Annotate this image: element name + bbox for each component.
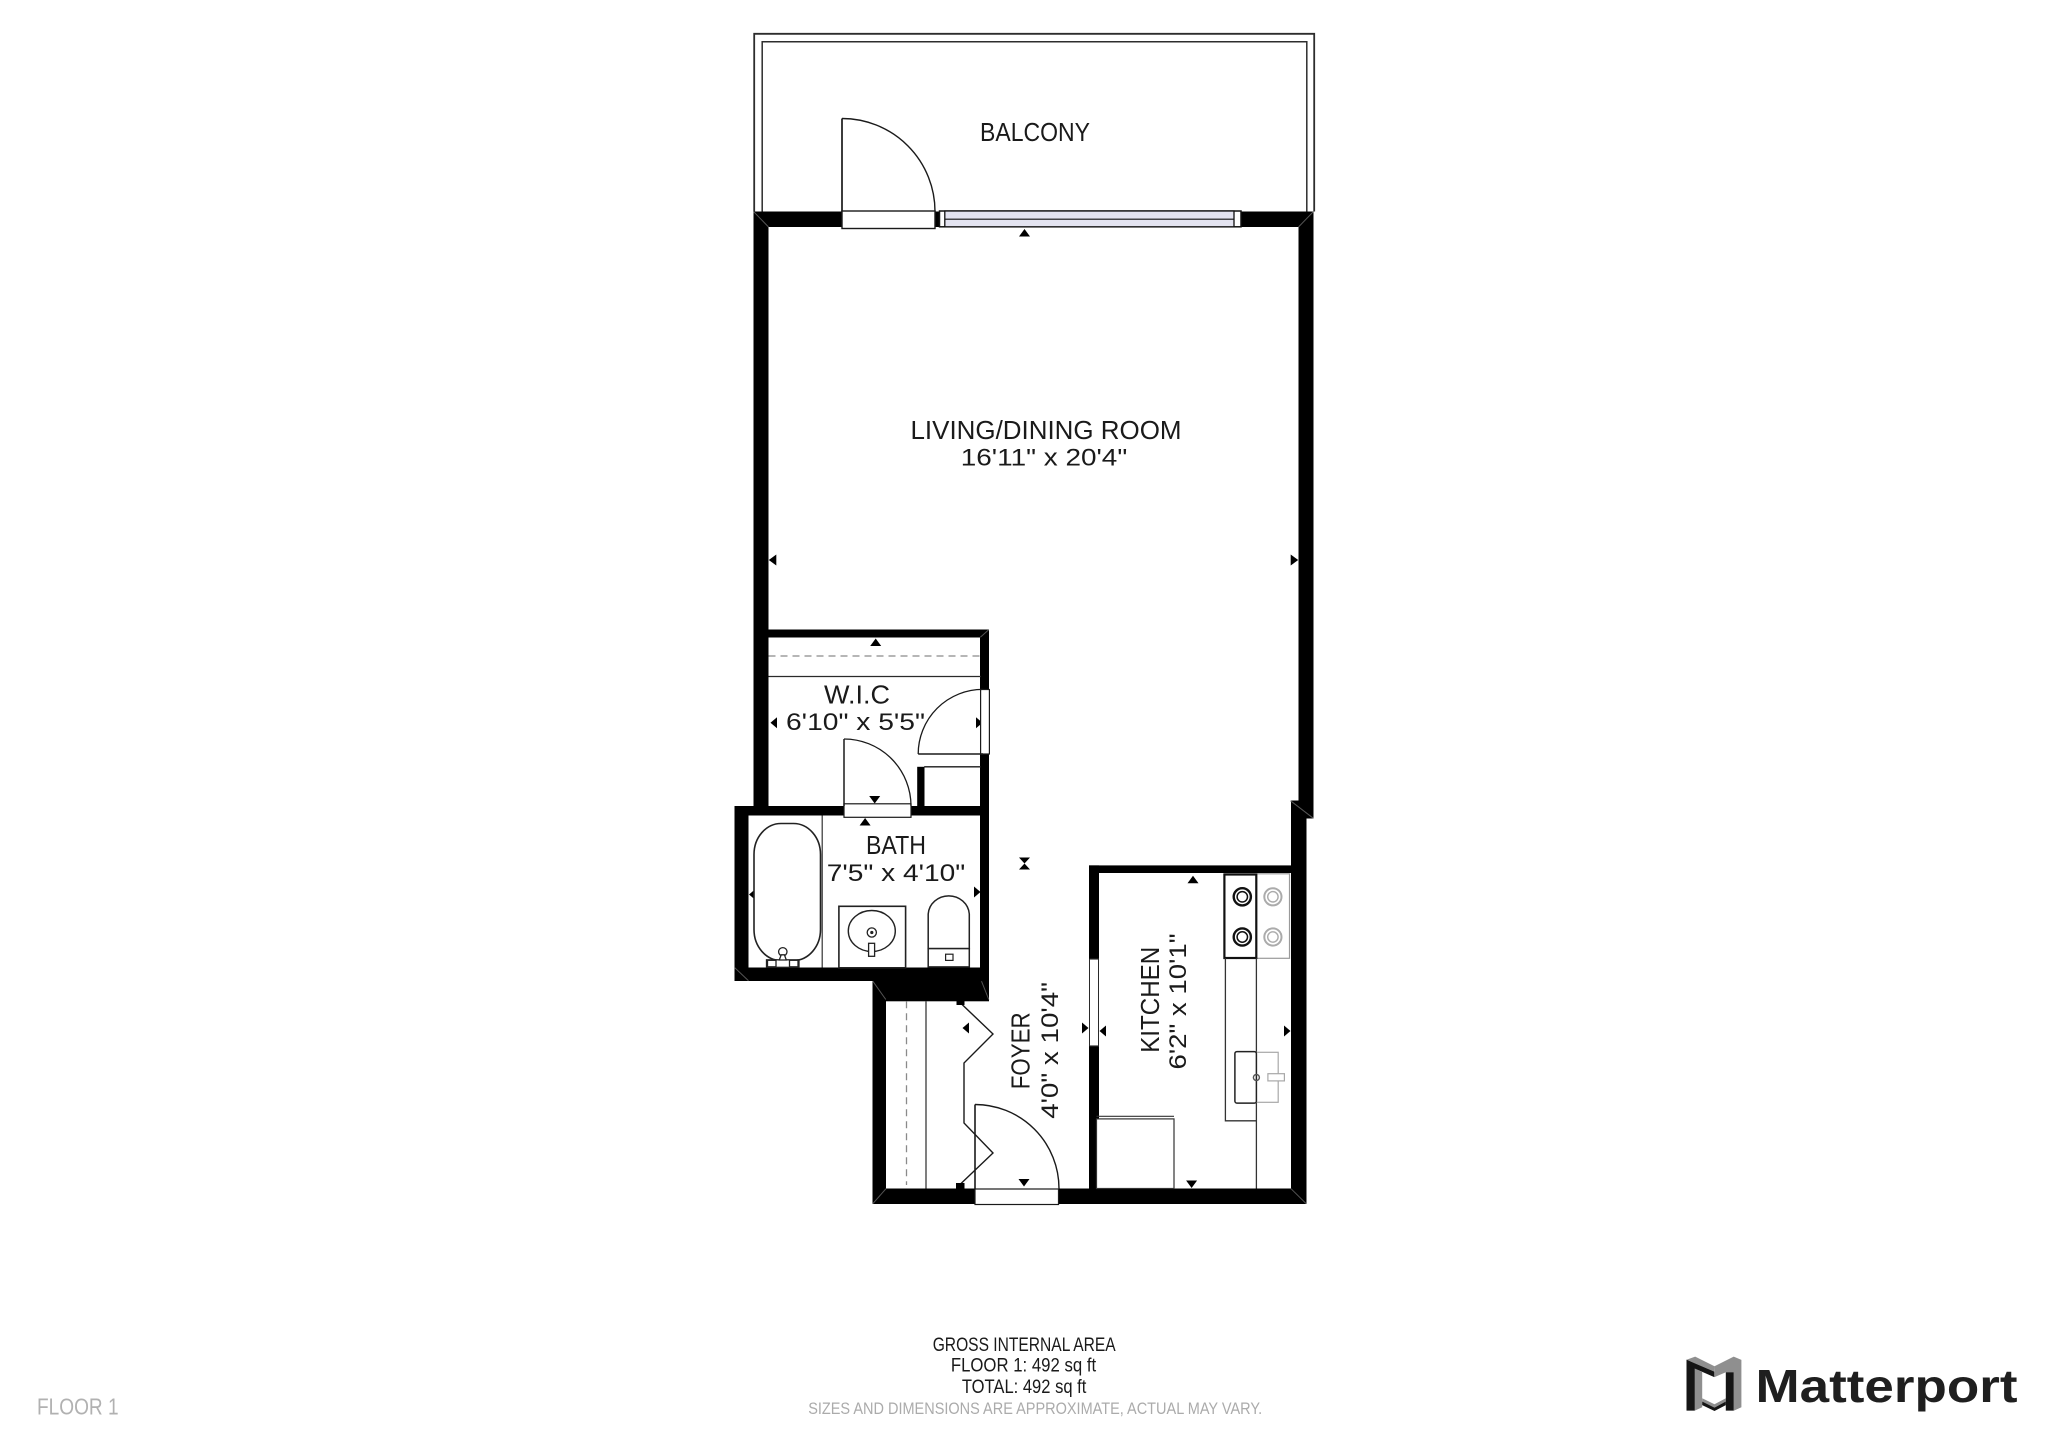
- svg-text:BATH: BATH: [866, 830, 926, 860]
- svg-text:7'5" x 4'10": 7'5" x 4'10": [827, 860, 966, 887]
- svg-text:Matterport: Matterport: [1756, 1360, 2018, 1412]
- svg-text:BALCONY: BALCONY: [980, 117, 1090, 147]
- svg-text:SIZES AND DIMENSIONS ARE APPRO: SIZES AND DIMENSIONS ARE APPROXIMATE, AC…: [808, 1399, 1262, 1418]
- svg-text:W.I.C: W.I.C: [824, 680, 890, 710]
- svg-text:FLOOR 1: 492 sq ft: FLOOR 1: 492 sq ft: [951, 1355, 1097, 1376]
- svg-text:GROSS INTERNAL AREA: GROSS INTERNAL AREA: [933, 1335, 1116, 1356]
- svg-text:LIVING/DINING ROOM: LIVING/DINING ROOM: [911, 415, 1182, 445]
- svg-text:6'10" x 5'5": 6'10" x 5'5": [786, 709, 925, 736]
- svg-text:16'11" x 20'4": 16'11" x 20'4": [961, 444, 1128, 471]
- svg-text:4'0" x 10'4": 4'0" x 10'4": [1037, 982, 1064, 1119]
- svg-text:TOTAL: 492 sq ft: TOTAL: 492 sq ft: [962, 1377, 1087, 1398]
- svg-text:FOYER: FOYER: [1005, 1012, 1035, 1089]
- svg-text:FLOOR 1: FLOOR 1: [37, 1394, 119, 1420]
- svg-text:6'2" x 10'1": 6'2" x 10'1": [1165, 934, 1192, 1070]
- svg-text:KITCHEN: KITCHEN: [1135, 947, 1165, 1053]
